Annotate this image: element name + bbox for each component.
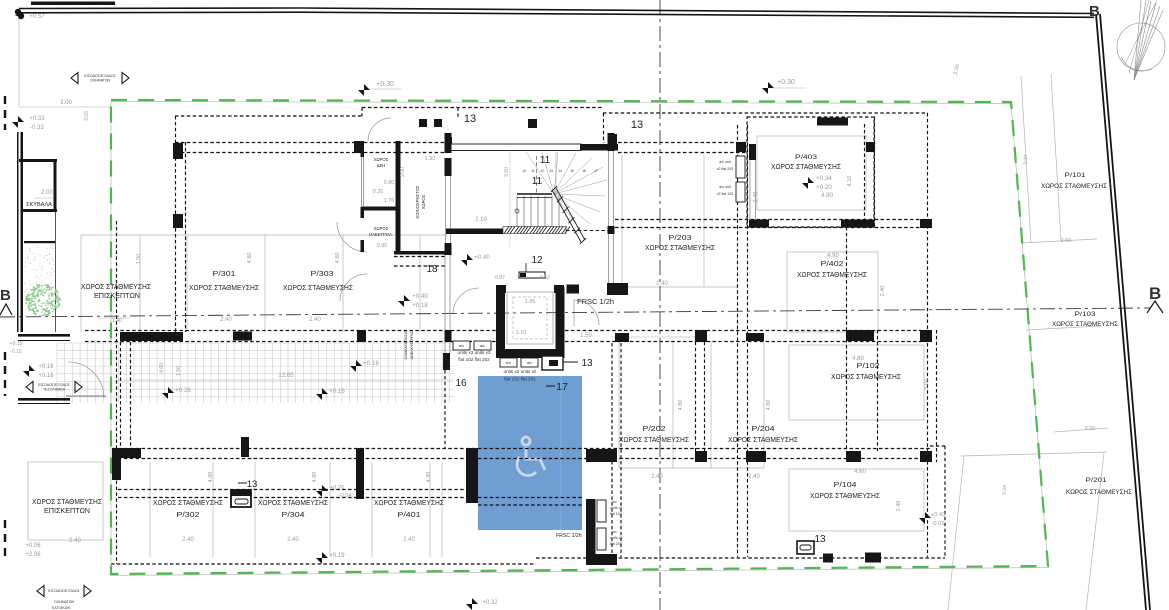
svg-text:3.60: 3.60 [504, 167, 510, 177]
svg-text:2.00: 2.00 [41, 190, 53, 196]
svg-text:ΧΩΡΟΣ ΣΤΑΘΜΕΥΣΗΣ: ΧΩΡΟΣ ΣΤΑΘΜΕΥΣΗΣ [728, 435, 799, 444]
svg-text:ΤΕΖΟΛΑΜΕΑ: ΤΕΖΟΛΑΜΕΑ [43, 387, 66, 391]
svg-text:ΚΩΡΟΣ ΣΤΑΘΜΕΥΣΗΣ: ΚΩΡΟΣ ΣΤΑΘΜΕΥΣΗΣ [1066, 489, 1132, 496]
svg-text:a/c: a/c [480, 343, 485, 348]
svg-text:flat 102 flat 202: flat 102 flat 202 [458, 357, 490, 362]
svg-text:3.03: 3.03 [84, 111, 90, 121]
svg-text:4.80: 4.80 [208, 472, 214, 483]
svg-text:P/104: P/104 [834, 480, 857, 489]
svg-text:2.00: 2.00 [400, 167, 406, 177]
svg-text:1.30: 1.30 [425, 156, 436, 162]
svg-text:P/303: P/303 [311, 269, 334, 278]
svg-text:13: 13 [464, 113, 476, 125]
svg-text:+0.43: +0.43 [931, 512, 946, 518]
svg-text:1.50: 1.50 [176, 366, 182, 376]
svg-text:15: 15 [570, 169, 574, 173]
svg-text:4.80: 4.80 [766, 400, 772, 411]
svg-text:4.60: 4.60 [854, 469, 866, 475]
svg-text:B: B [0, 287, 11, 304]
svg-text:3.00: 3.00 [60, 100, 72, 106]
svg-text:FRSC 1/2h: FRSC 1/2h [556, 533, 582, 539]
svg-text:2.40: 2.40 [220, 317, 232, 323]
svg-text:6.09: 6.09 [1002, 485, 1009, 495]
svg-text:a/c: a/c [459, 343, 464, 348]
svg-text:4.80: 4.80 [821, 192, 834, 199]
svg-text:2.40: 2.40 [287, 537, 299, 543]
svg-text:16: 16 [582, 169, 586, 173]
svg-text:2.50: 2.50 [1085, 426, 1096, 432]
svg-text:+2.06: +2.06 [25, 552, 41, 558]
svg-text:2.40: 2.40 [182, 537, 194, 543]
svg-text:ΧΩΡΟΣ ΣΤΑΘΜΕΥΣΗΣ: ΧΩΡΟΣ ΣΤΑΘΜΕΥΣΗΣ [645, 243, 716, 252]
svg-text:+0.57: +0.57 [29, 14, 45, 20]
svg-text:ΕΙΣΟΔΟΣ/ΕΞΟΔΟΣ: ΕΙΣΟΔΟΣ/ΕΞΟΔΟΣ [48, 589, 80, 593]
svg-text:4.80: 4.80 [852, 356, 864, 362]
svg-text:4.60: 4.60 [159, 363, 165, 373]
svg-text:+0.16: +0.16 [38, 373, 54, 379]
svg-text:0.87: 0.87 [495, 275, 505, 281]
svg-text:+0.20: +0.20 [816, 184, 832, 191]
svg-text:4.80: 4.80 [335, 253, 341, 264]
svg-text:ΧΩΡΟΣ: ΧΩΡΟΣ [374, 157, 389, 162]
svg-text:2.50: 2.50 [1061, 238, 1072, 244]
svg-text:a/c: a/c [612, 530, 617, 534]
svg-text:ΟΧΗΜΑΤΩΝ: ΟΧΗΜΑΤΩΝ [54, 600, 75, 604]
svg-text:0.90: 0.90 [377, 243, 388, 249]
svg-text:P/401: P/401 [398, 510, 421, 519]
svg-text:1.10: 1.10 [516, 330, 527, 336]
svg-text:+0.40: +0.40 [412, 293, 428, 300]
svg-text:4.80: 4.80 [312, 472, 318, 483]
svg-text:ΧΩΡΟΣ ΣΤΑΘΜΕΥΣΗΣ: ΧΩΡΟΣ ΣΤΑΘΜΕΥΣΗΣ [283, 283, 354, 292]
svg-text:units x3: units x3 [610, 506, 622, 510]
svg-text:P/204: P/204 [752, 424, 775, 433]
svg-text:ΧΩΡΟΣ ΣΤΑΘΜΕΥΣΗΣ: ΧΩΡΟΣ ΣΤΑΘΜΕΥΣΗΣ [619, 435, 690, 444]
svg-text:13: 13 [581, 358, 593, 369]
svg-text:10: 10 [522, 169, 526, 173]
svg-text:ΕΙΣΟΔΟΣ/ΕΞΟΔΟΣ: ΕΙΣΟΔΟΣ/ΕΞΟΔΟΣ [84, 74, 116, 78]
svg-text:14: 14 [558, 169, 562, 173]
svg-text:+0.26: +0.26 [175, 387, 191, 394]
svg-text:4.10: 4.10 [847, 176, 853, 187]
svg-text:4.80: 4.80 [678, 400, 684, 411]
svg-text:ΧΩΡΟΣ ΣΤΑΘΜΕΥΣΗΣ: ΧΩΡΟΣ ΣΤΑΘΜΕΥΣΗΣ [771, 162, 842, 171]
svg-text:-0.01: -0.01 [931, 521, 944, 527]
svg-text:ΧΩΡΟΣ ΣΤΑΘΜΕΥΣΗΣ: ΧΩΡΟΣ ΣΤΑΘΜΕΥΣΗΣ [797, 270, 868, 279]
svg-text:units x3: units x3 [610, 536, 622, 540]
svg-text:1.40: 1.40 [112, 318, 123, 324]
svg-text:11: 11 [532, 176, 543, 187]
svg-text:+0.15: +0.15 [10, 341, 23, 347]
svg-text:2.40: 2.40 [656, 281, 668, 287]
svg-text:17: 17 [556, 381, 568, 393]
svg-text:+0.32: +0.32 [482, 600, 498, 606]
svg-text:+0.18: +0.18 [363, 360, 379, 367]
svg-text:flat 101 flat 201: flat 101 flat 201 [504, 377, 536, 382]
svg-text:0.80: 0.80 [384, 180, 395, 186]
svg-text:units x2 units x2: units x2 units x2 [504, 369, 537, 374]
svg-text:B: B [1089, 3, 1100, 20]
svg-text:2.40: 2.40 [880, 286, 886, 297]
svg-text:11: 11 [540, 155, 551, 166]
svg-text:+0.30: +0.30 [777, 79, 795, 86]
svg-text:units x3 units x3: units x3 units x3 [458, 350, 491, 355]
svg-text:ΕΠΙΣΚΕΠΤΩΝ: ΕΠΙΣΚΕΠΤΩΝ [94, 291, 140, 300]
svg-text:P/203: P/203 [669, 233, 692, 242]
svg-text:2.40: 2.40 [309, 317, 321, 323]
svg-text:12.65: 12.65 [278, 372, 294, 379]
svg-text:+0.26: +0.26 [330, 485, 345, 491]
svg-text:1.76: 1.76 [384, 198, 395, 204]
svg-text:0.52: 0.52 [540, 275, 550, 281]
svg-text:a/c: a/c [527, 360, 532, 365]
svg-text:ΧΩΡΟΣ ΣΤΑΘΜΕΥΣΗΣ: ΧΩΡΟΣ ΣΤΑΘΜΕΥΣΗΣ [810, 491, 881, 500]
svg-text:P/301: P/301 [213, 269, 236, 278]
svg-text:ΚΛΙΜΑΚΟΣΤΑΣΙΟ: ΚΛΙΜΑΚΟΣΤΑΣΙΟ [404, 330, 408, 359]
svg-text:ΚΟΙΝΟΧΡΗΣΤΟΣ: ΚΟΙΝΟΧΡΗΣΤΟΣ [415, 185, 420, 218]
svg-text:+0.19: +0.19 [329, 553, 345, 559]
svg-text:12: 12 [540, 169, 544, 173]
svg-text:ΗΛΕΚΤΡΟΛ.: ΗΛΕΚΤΡΟΛ. [369, 232, 393, 237]
svg-text:ΧΩΡΟΣ ΣΤΑΘΜΕΥΣΗΣ: ΧΩΡΟΣ ΣΤΑΘΜΕΥΣΗΣ [1041, 183, 1107, 190]
svg-text:1.50: 1.50 [580, 333, 592, 339]
svg-text:+0.16: +0.16 [38, 364, 54, 370]
svg-text:1.50: 1.50 [136, 254, 142, 264]
svg-text:ΧΩΡΟΣ: ΧΩΡΟΣ [374, 226, 389, 231]
svg-text:ΧΩΡΟΣ ΣΤΑΘΜΕΥΣΗΣ: ΧΩΡΟΣ ΣΤΑΘΜΕΥΣΗΣ [374, 498, 445, 507]
svg-text:ΧΩΡΟΣ ΣΤΑΘΜΕΥΣΗΣ: ΧΩΡΟΣ ΣΤΑΘΜΕΥΣΗΣ [831, 372, 902, 381]
svg-text:2.40: 2.40 [896, 501, 902, 512]
svg-text:+0.34: +0.34 [816, 175, 832, 182]
svg-text:ΑΝΕΛΚΥΣΤΗΡΑΣ: ΑΝΕΛΚΥΣΤΗΡΑΣ [410, 330, 414, 359]
svg-text:13: 13 [549, 169, 553, 173]
svg-text:P/102: P/102 [857, 361, 880, 370]
svg-text:a/c unit: a/c unit [719, 160, 731, 164]
svg-text:flat 104: flat 104 [610, 512, 622, 516]
svg-text:13: 13 [814, 534, 826, 545]
svg-text:ΚΑΤΟΙΚΩΝ: ΚΑΤΟΙΚΩΝ [52, 606, 71, 610]
svg-text:P/202: P/202 [643, 424, 666, 433]
svg-text:11: 11 [531, 169, 535, 173]
svg-text:16: 16 [455, 378, 467, 389]
svg-text:P/101: P/101 [1065, 172, 1086, 179]
svg-text:x2 flat 203: x2 flat 203 [717, 167, 734, 171]
svg-text:2.40: 2.40 [69, 538, 81, 544]
svg-text:-0.15: -0.15 [10, 349, 22, 355]
svg-text:P/302: P/302 [177, 510, 200, 519]
svg-text:+0.30: +0.30 [376, 81, 394, 88]
svg-text:P/403: P/403 [795, 154, 817, 161]
svg-text:1.85: 1.85 [525, 299, 536, 305]
svg-text:-0.33: -0.33 [30, 125, 44, 131]
svg-text:4.90: 4.90 [827, 253, 839, 259]
svg-text:P/402: P/402 [821, 259, 844, 268]
svg-text:3.09: 3.09 [1023, 155, 1030, 165]
svg-text:x2 flat 103: x2 flat 103 [717, 192, 734, 196]
svg-text:a/c: a/c [612, 500, 617, 504]
svg-text:18: 18 [426, 264, 438, 275]
svg-text:-0.04: -0.04 [338, 493, 352, 499]
svg-text:b/c: b/c [506, 360, 511, 365]
svg-text:P/201: P/201 [1086, 477, 1107, 484]
svg-text:+0.06: +0.06 [25, 543, 41, 549]
svg-text:ΧΩΡΟΣ ΣΤΑΘΜΕΥΣΗΣ: ΧΩΡΟΣ ΣΤΑΘΜΕΥΣΗΣ [258, 498, 329, 507]
svg-text:2.40: 2.40 [753, 192, 759, 203]
svg-text:+0.18: +0.18 [412, 302, 428, 309]
svg-text:ΧΩΡΟΣ ΣΤΑΘΜΕΥΣΗΣ: ΧΩΡΟΣ ΣΤΑΘΜΕΥΣΗΣ [153, 498, 224, 507]
svg-text:17: 17 [594, 169, 598, 173]
svg-text:2.10: 2.10 [475, 217, 487, 223]
svg-text:13: 13 [631, 119, 643, 131]
svg-text:ΧΩΡΟΣ ΣΤΑΘΜΕΥΣΗΣ: ΧΩΡΟΣ ΣΤΑΘΜΕΥΣΗΣ [1052, 321, 1118, 328]
svg-text:P/103: P/103 [1075, 311, 1096, 318]
svg-text:a/c unit: a/c unit [719, 185, 731, 189]
svg-text:0.20: 0.20 [373, 189, 384, 195]
svg-text:ΧΩΡΟΣ ΣΤΑΘΜΕΥΣΗΣ: ΧΩΡΟΣ ΣΤΑΘΜΕΥΣΗΣ [189, 283, 260, 292]
svg-text:4.80: 4.80 [247, 253, 253, 264]
svg-text:FRSC 1/2h: FRSC 1/2h [577, 297, 614, 306]
svg-text:4.80: 4.80 [426, 472, 432, 483]
svg-text:ΔΕΗ: ΔΕΗ [377, 163, 386, 168]
svg-text:2.40: 2.40 [403, 537, 415, 543]
svg-text:+0.33: +0.33 [29, 116, 45, 122]
svg-text:ΧΩΡΟΣ ΣΤΑΘΜΕΥΣΗΣ: ΧΩΡΟΣ ΣΤΑΘΜΕΥΣΗΣ [32, 497, 103, 506]
svg-text:13: 13 [247, 479, 258, 490]
svg-text:flat 204: flat 204 [610, 542, 622, 546]
svg-text:2.40: 2.40 [748, 474, 760, 480]
svg-text:ΕΠΙΣΚΕΠΤΩΝ: ΕΠΙΣΚΕΠΤΩΝ [44, 506, 90, 515]
svg-text:ΧΩΡΟΣ: ΧΩΡΟΣ [421, 194, 426, 209]
svg-text:ΟΧΗΜΑΤΩΝ: ΟΧΗΜΑΤΩΝ [90, 78, 111, 82]
svg-text:ΧΩΡΟΣ ΣΤΑΘΜΕΥΣΗΣ: ΧΩΡΟΣ ΣΤΑΘΜΕΥΣΗΣ [81, 282, 152, 291]
svg-text:5.00: 5.00 [924, 379, 930, 390]
svg-text:ΣΚΥΒΑΛΑ: ΣΚΥΒΑΛΑ [26, 202, 52, 208]
svg-text:2.40: 2.40 [651, 474, 663, 480]
svg-text:12: 12 [531, 255, 543, 266]
svg-text:+0.16: +0.16 [329, 388, 345, 395]
svg-text:+0.40: +0.40 [474, 254, 490, 261]
svg-text:ΕΙΣΟΔΟΣ/ΕΞΟΔΟΣ: ΕΙΣΟΔΟΣ/ΕΞΟΔΟΣ [38, 383, 70, 387]
svg-text:P/304: P/304 [282, 510, 305, 519]
